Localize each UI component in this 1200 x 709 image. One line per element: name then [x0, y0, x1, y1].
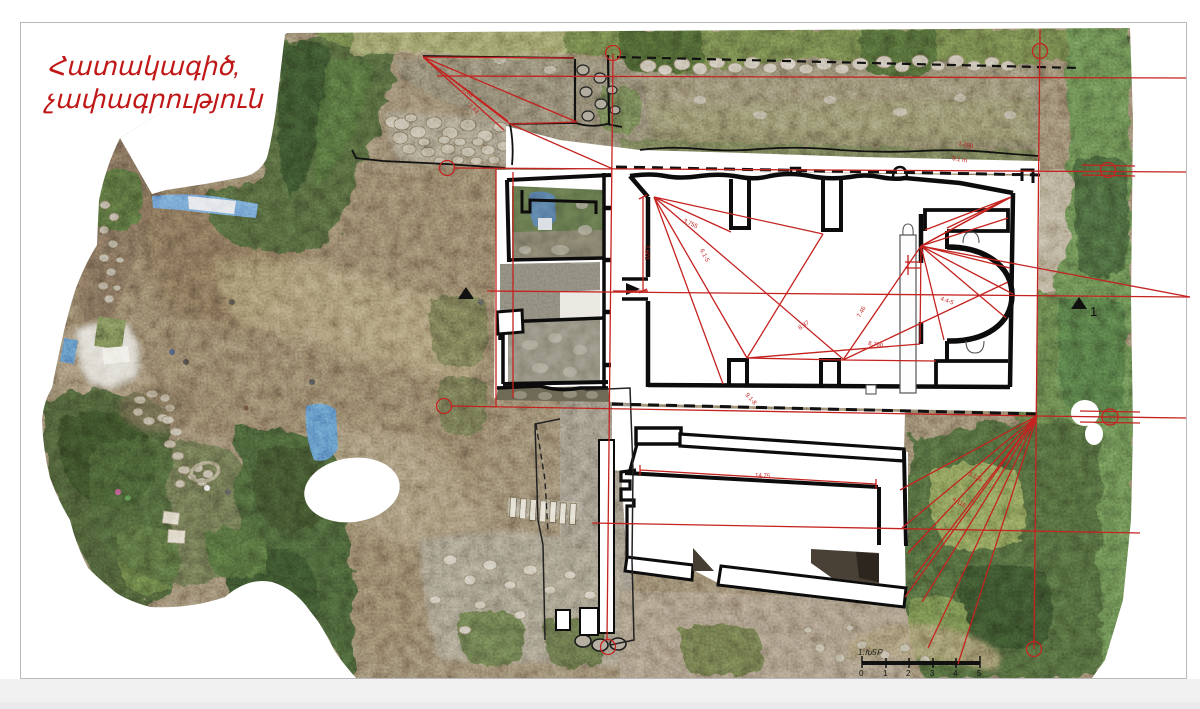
svg-text:4: 4 — [953, 669, 958, 678]
svg-text:չափագրություն: չափագրություն — [43, 84, 264, 114]
svg-text:5: 5 — [977, 669, 982, 678]
svg-text:2: 2 — [906, 669, 911, 678]
svg-text:3: 3 — [930, 669, 935, 678]
svg-text:Հատակագիծ,: Հատակագիծ, — [47, 51, 240, 81]
svg-text:1: 1 — [883, 669, 888, 678]
svg-text:7.601: 7.601 — [643, 245, 649, 261]
svg-text:1:Խ5Բ: 1:Խ5Բ — [858, 648, 883, 657]
svg-text:1: 1 — [1090, 304, 1097, 319]
svg-text:0: 0 — [859, 669, 864, 678]
svg-text:14.75: 14.75 — [755, 473, 771, 480]
